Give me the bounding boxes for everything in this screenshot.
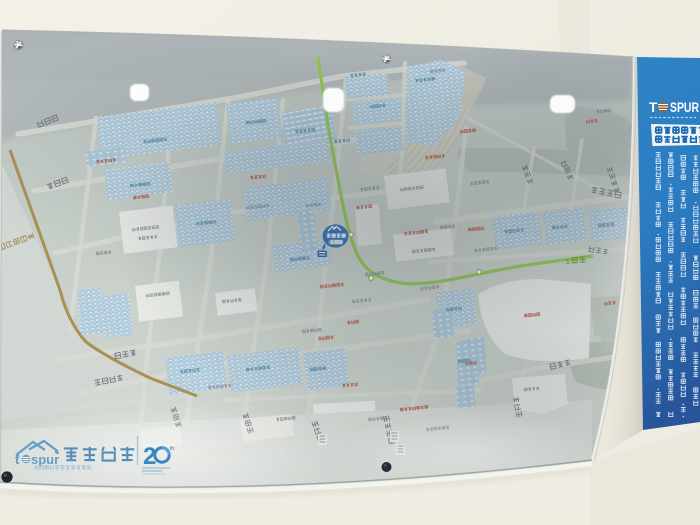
svg-text:t: t [15,452,20,467]
svg-text:T: T [649,100,658,115]
svg-text:th: th [170,446,174,452]
svg-text:SPUR: SPUR [670,100,699,115]
svg-text:spur: spur [31,452,59,467]
